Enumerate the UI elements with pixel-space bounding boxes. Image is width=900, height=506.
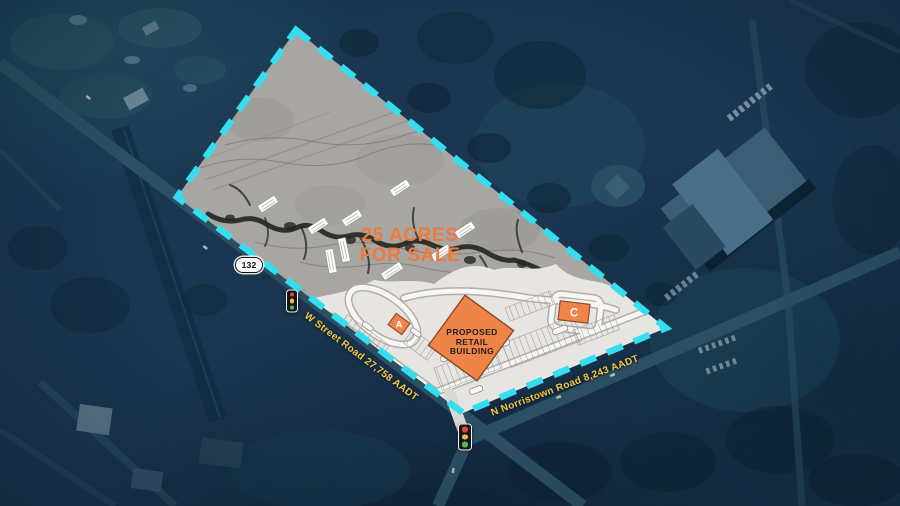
pad-c-label: C <box>570 308 578 320</box>
signal-amber-light <box>290 299 295 304</box>
roof-bottom-left <box>198 437 243 469</box>
signal-green-light <box>462 442 468 448</box>
for-sale-headline: 25 ACRES FOR SALE <box>360 226 461 266</box>
headline-acreage: 25 ACRES <box>360 226 461 246</box>
aerial-map-canvas: A C 25 ACRES FOR SALE PROPOSED RETAIL BU… <box>0 0 900 506</box>
route-132-shield-icon: 132 <box>235 257 263 273</box>
signal-green-light <box>290 305 295 310</box>
baseball-field <box>591 165 645 207</box>
pad-a-label: A <box>396 320 403 331</box>
signal-red-light <box>462 427 468 433</box>
traffic-light-icon <box>458 424 472 451</box>
headline-for-sale: FOR SALE <box>360 246 461 266</box>
signal-amber-light <box>462 434 468 440</box>
signal-red-light <box>290 292 295 297</box>
roof-bottom-left <box>76 404 112 435</box>
roof-bottom-left <box>131 468 163 492</box>
traffic-light-icon <box>286 290 298 313</box>
school-building <box>645 116 816 278</box>
proposed-retail-building-label: PROPOSED RETAIL BUILDING <box>446 328 497 357</box>
